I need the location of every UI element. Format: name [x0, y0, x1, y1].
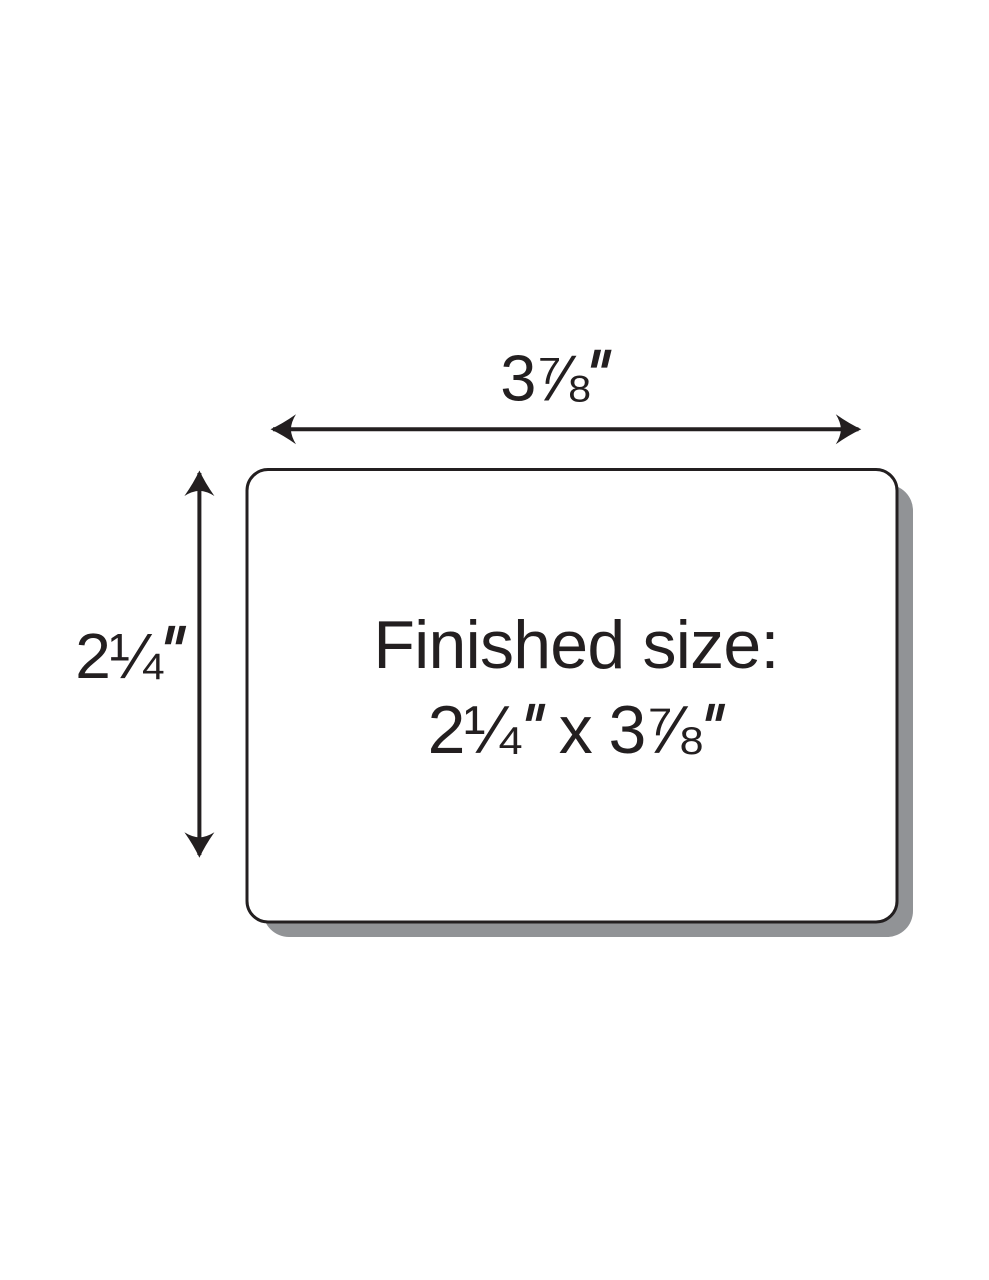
svg-text:Finished size:: Finished size:	[373, 607, 778, 683]
svg-text:2¼″ x 3⅞″: 2¼″ x 3⅞″	[428, 692, 726, 768]
